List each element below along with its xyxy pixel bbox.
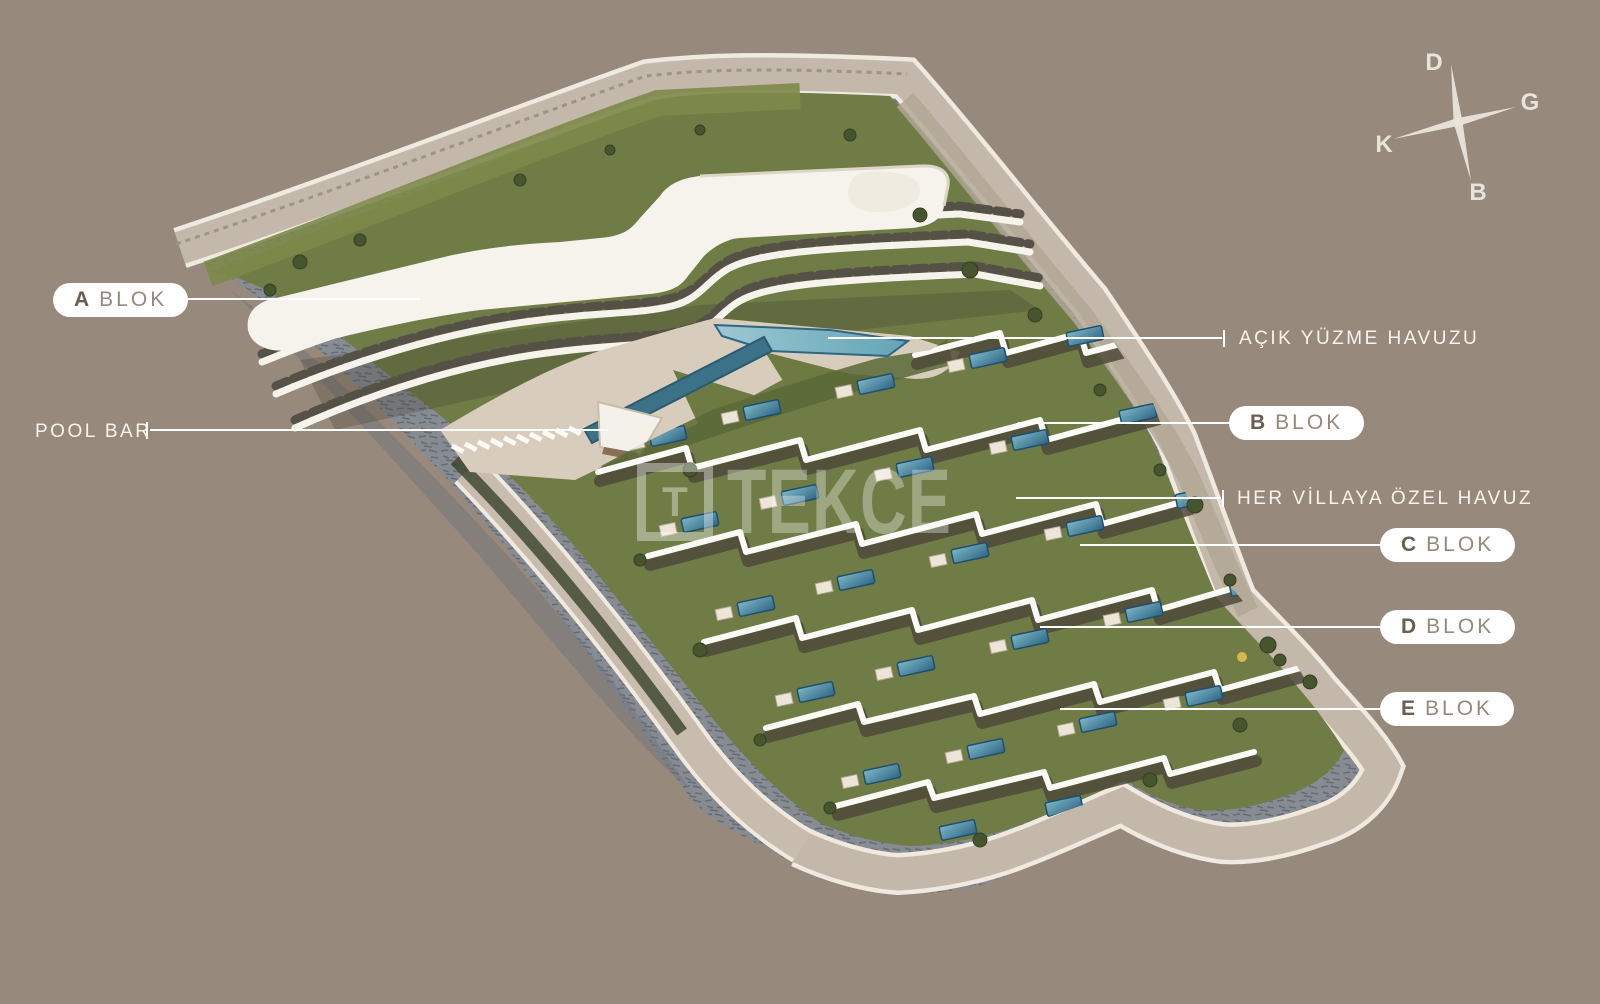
compass-right-label: G	[1521, 89, 1540, 116]
block-label-b-word: BLOK	[1275, 411, 1343, 435]
leader-line-b-blok	[1018, 422, 1229, 424]
block-label-a: A BLOK	[53, 283, 188, 317]
leader-tick-villa-pool	[1222, 490, 1224, 507]
block-label-b: B BLOK	[1229, 406, 1364, 440]
compass-left-label: K	[1375, 131, 1393, 158]
compass-top-label: D	[1425, 49, 1442, 76]
leader-line-open-pool	[828, 337, 1222, 339]
leader-tick-open-pool	[1223, 330, 1225, 347]
compass-bottom-label: B	[1469, 179, 1486, 206]
leader-line-pool-bar	[150, 429, 608, 431]
block-label-b-letter: B	[1250, 411, 1267, 435]
block-label-d: D BLOK	[1380, 610, 1515, 644]
leader-line-villa-pool	[1016, 497, 1221, 499]
parasol	[1237, 652, 1247, 662]
block-label-c-letter: C	[1401, 533, 1418, 557]
leader-line-d-blok	[1040, 626, 1380, 628]
block-label-a-word: BLOK	[99, 288, 167, 312]
compass-icon: D G K B	[1375, 49, 1539, 206]
feature-label-open-pool: AÇIK YÜZME HAVUZU	[1239, 328, 1479, 350]
block-label-e-word: BLOK	[1425, 697, 1493, 721]
block-label-d-word: BLOK	[1426, 615, 1494, 639]
feature-label-pool-bar: POOL BAR	[35, 421, 145, 443]
leader-line-a-blok	[173, 298, 420, 300]
block-label-d-letter: D	[1401, 615, 1418, 639]
block-label-e: E BLOK	[1380, 692, 1514, 726]
block-label-c-word: BLOK	[1426, 533, 1494, 557]
leader-line-c-blok	[1080, 544, 1380, 546]
block-label-e-letter: E	[1401, 697, 1417, 721]
block-label-a-letter: A	[74, 288, 91, 312]
block-label-c: C BLOK	[1380, 528, 1515, 562]
leader-line-e-blok	[1060, 708, 1380, 710]
site-plan-stage: D G K B T TEKCE A BLOK POOL BAR AÇIK YÜZ…	[0, 0, 1600, 1004]
feature-label-villa-pool: HER VİLLAYA ÖZEL HAVUZ	[1237, 488, 1533, 510]
